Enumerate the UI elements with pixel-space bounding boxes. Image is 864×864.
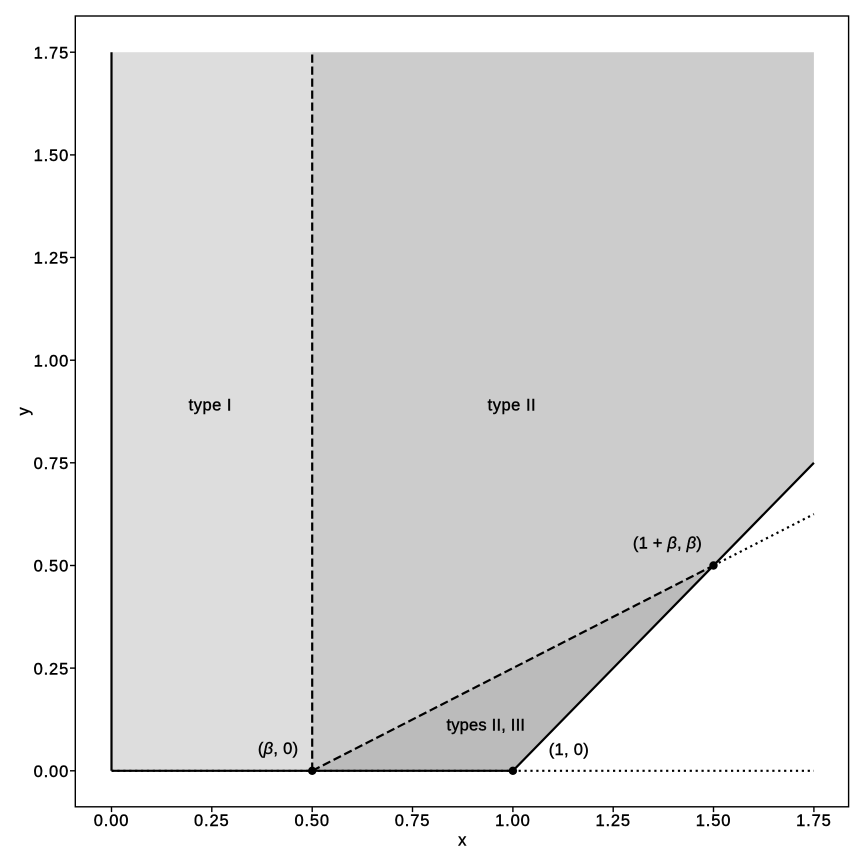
- svg-text:0.25: 0.25: [194, 812, 230, 830]
- svg-text:(1 + β, β): (1 + β, β): [633, 535, 702, 553]
- svg-text:1.75: 1.75: [34, 44, 70, 62]
- svg-text:1.25: 1.25: [34, 250, 70, 268]
- svg-text:0.25: 0.25: [34, 660, 70, 678]
- svg-text:0.00: 0.00: [34, 763, 70, 781]
- svg-text:x: x: [458, 831, 467, 849]
- svg-text:1.50: 1.50: [696, 812, 732, 830]
- svg-text:0.00: 0.00: [94, 812, 130, 830]
- svg-text:1.00: 1.00: [495, 812, 531, 830]
- svg-text:types II, III: types II, III: [446, 717, 525, 735]
- svg-text:0.75: 0.75: [395, 812, 431, 830]
- svg-text:0.50: 0.50: [294, 812, 330, 830]
- svg-text:y: y: [15, 407, 33, 416]
- svg-text:1.50: 1.50: [34, 147, 70, 165]
- svg-text:type II: type II: [488, 397, 536, 415]
- svg-text:0.50: 0.50: [34, 558, 70, 576]
- svg-text:1.75: 1.75: [796, 812, 832, 830]
- svg-text:0.75: 0.75: [34, 455, 70, 473]
- svg-text:(1, 0): (1, 0): [549, 741, 589, 759]
- svg-text:(β, 0): (β, 0): [258, 740, 299, 758]
- svg-text:type I: type I: [189, 397, 232, 415]
- svg-text:1.25: 1.25: [595, 812, 631, 830]
- svg-text:1.00: 1.00: [34, 352, 70, 370]
